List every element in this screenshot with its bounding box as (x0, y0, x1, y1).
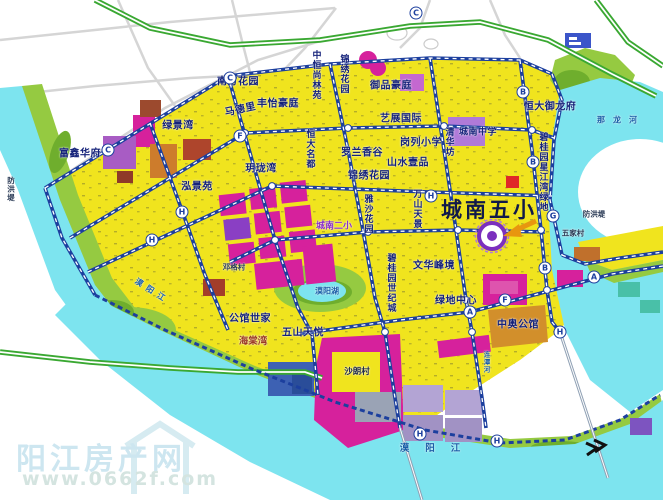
map-base-layer (0, 0, 663, 500)
district-map: 南方花园中恒尚林苑锦绣花园御品豪庭丰怡豪庭马德里绿景湾富鑫华府泓景苑玥珑湾恒大名… (0, 0, 663, 500)
lake-moyanghu (298, 280, 346, 302)
